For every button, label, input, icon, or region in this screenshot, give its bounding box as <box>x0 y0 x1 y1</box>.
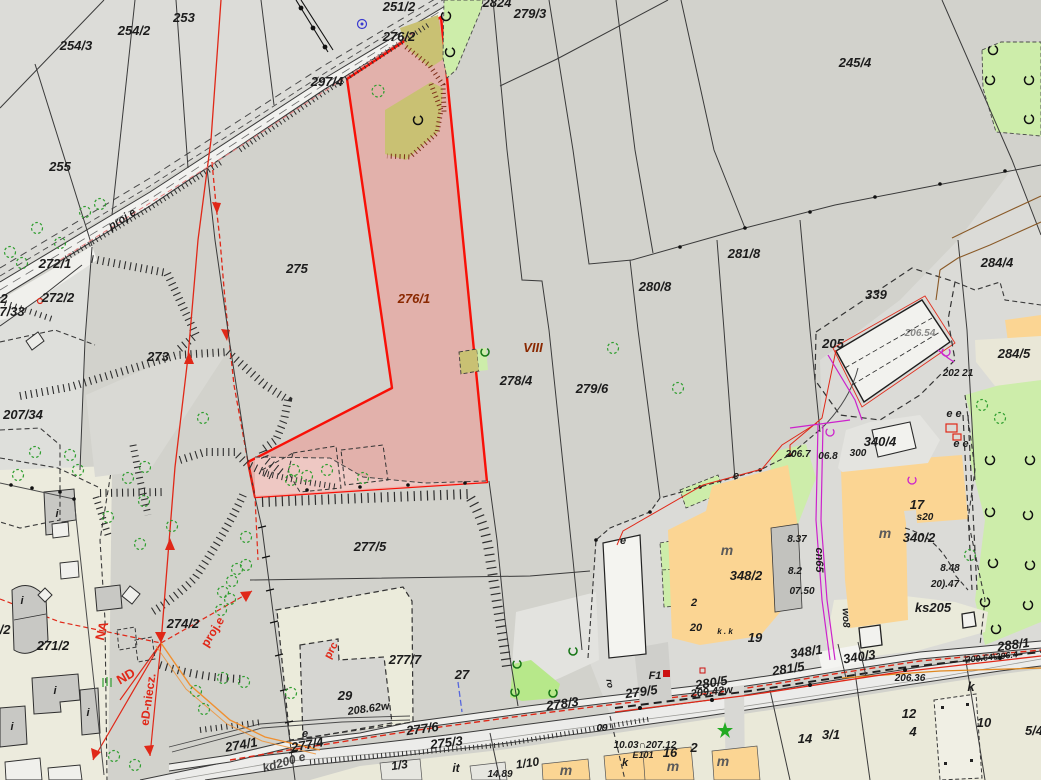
svg-text:cn65: cn65 <box>813 547 825 573</box>
svg-text:m: m <box>879 525 891 541</box>
svg-text:279/3: 279/3 <box>513 6 547 21</box>
svg-text:278/4: 278/4 <box>499 373 533 388</box>
svg-text:10: 10 <box>977 715 992 730</box>
svg-text:272/1: 272/1 <box>38 256 72 271</box>
svg-text:2824: 2824 <box>482 0 513 10</box>
svg-text:4: 4 <box>908 724 917 739</box>
svg-text:254/3: 254/3 <box>59 38 93 53</box>
svg-text:281/8: 281/8 <box>727 246 761 261</box>
svg-text:/2: /2 <box>0 622 11 637</box>
svg-text:297/4: 297/4 <box>310 74 344 89</box>
svg-text:m: m <box>667 758 679 774</box>
svg-text:206.7: 206.7 <box>784 449 810 460</box>
svg-text:m: m <box>721 542 733 558</box>
svg-text:09: 09 <box>596 723 608 734</box>
svg-text:245/4: 245/4 <box>838 55 872 70</box>
svg-text:255: 255 <box>48 159 71 174</box>
svg-text:2: 2 <box>689 740 698 755</box>
svg-text:e e: e e <box>946 408 961 420</box>
svg-text:e: e <box>302 728 308 740</box>
svg-text:29: 29 <box>337 688 353 703</box>
svg-text:e: e <box>733 470 739 482</box>
svg-text:14.89: 14.89 <box>487 769 512 780</box>
svg-text:206.36: 206.36 <box>894 673 926 684</box>
svg-text:348/2: 348/2 <box>730 568 763 583</box>
svg-text:253: 253 <box>172 10 195 25</box>
svg-text:19: 19 <box>748 630 763 645</box>
svg-text:254/2: 254/2 <box>117 23 151 38</box>
svg-text:8.48: 8.48 <box>940 563 960 574</box>
svg-text:06.8: 06.8 <box>818 451 838 462</box>
svg-text:2: 2 <box>0 291 8 306</box>
svg-text:k . k: k . k <box>717 627 733 636</box>
svg-text:339: 339 <box>865 287 887 302</box>
svg-text:272/2: 272/2 <box>41 290 75 305</box>
svg-text:275: 275 <box>285 261 308 276</box>
svg-text:277/5: 277/5 <box>353 539 387 554</box>
svg-text:207/34: 207/34 <box>2 407 44 422</box>
svg-text:it: it <box>452 761 460 775</box>
svg-text:8.2: 8.2 <box>788 566 802 577</box>
svg-text:206.54: 206.54 <box>904 328 936 339</box>
svg-text:27: 27 <box>454 667 470 682</box>
svg-text:271/2: 271/2 <box>36 638 70 653</box>
svg-text:280/8: 280/8 <box>638 279 672 294</box>
svg-text:k: k <box>622 757 629 769</box>
svg-text:E101: E101 <box>632 750 653 760</box>
svg-text:7/33: 7/33 <box>0 304 25 319</box>
svg-text:20).47: 20).47 <box>930 579 960 590</box>
svg-text:205: 205 <box>821 336 844 351</box>
svg-text:3/1: 3/1 <box>822 727 840 742</box>
svg-text:14: 14 <box>798 731 813 746</box>
svg-text:2: 2 <box>690 597 697 609</box>
svg-text:s20: s20 <box>917 512 934 523</box>
svg-text:251/2: 251/2 <box>382 0 416 14</box>
svg-text:273: 273 <box>146 349 169 364</box>
svg-text:VIII: VIII <box>523 340 543 355</box>
svg-text:m: m <box>717 753 729 769</box>
svg-text:1/3: 1/3 <box>390 757 409 773</box>
svg-text:e: e <box>620 535 626 547</box>
svg-text:279/6: 279/6 <box>575 381 609 396</box>
svg-text:202 21: 202 21 <box>942 368 974 379</box>
svg-text:wo8: wo8 <box>840 608 852 628</box>
svg-text:276/2: 276/2 <box>382 29 416 44</box>
svg-text:17: 17 <box>910 497 925 512</box>
svg-text:e e: e e <box>953 438 968 450</box>
svg-text:k: k <box>967 679 975 694</box>
svg-text:F1: F1 <box>649 670 662 682</box>
svg-text:8.37: 8.37 <box>787 534 807 545</box>
svg-text:284/5: 284/5 <box>997 346 1031 361</box>
svg-text:5/4: 5/4 <box>1025 723 1041 738</box>
svg-text:300: 300 <box>850 448 867 459</box>
svg-text:284/4: 284/4 <box>980 255 1014 270</box>
svg-text:20: 20 <box>689 622 703 634</box>
svg-text:340/4: 340/4 <box>864 434 897 449</box>
svg-text:12: 12 <box>902 706 917 721</box>
svg-text:m: m <box>560 762 572 778</box>
svg-text:ks205: ks205 <box>915 600 952 615</box>
svg-text:07.50: 07.50 <box>789 586 814 597</box>
svg-text:340/2: 340/2 <box>903 530 936 545</box>
svg-text:274/2: 274/2 <box>166 616 200 631</box>
svg-text:277/7: 277/7 <box>388 652 422 667</box>
svg-text:276/1: 276/1 <box>397 291 431 306</box>
